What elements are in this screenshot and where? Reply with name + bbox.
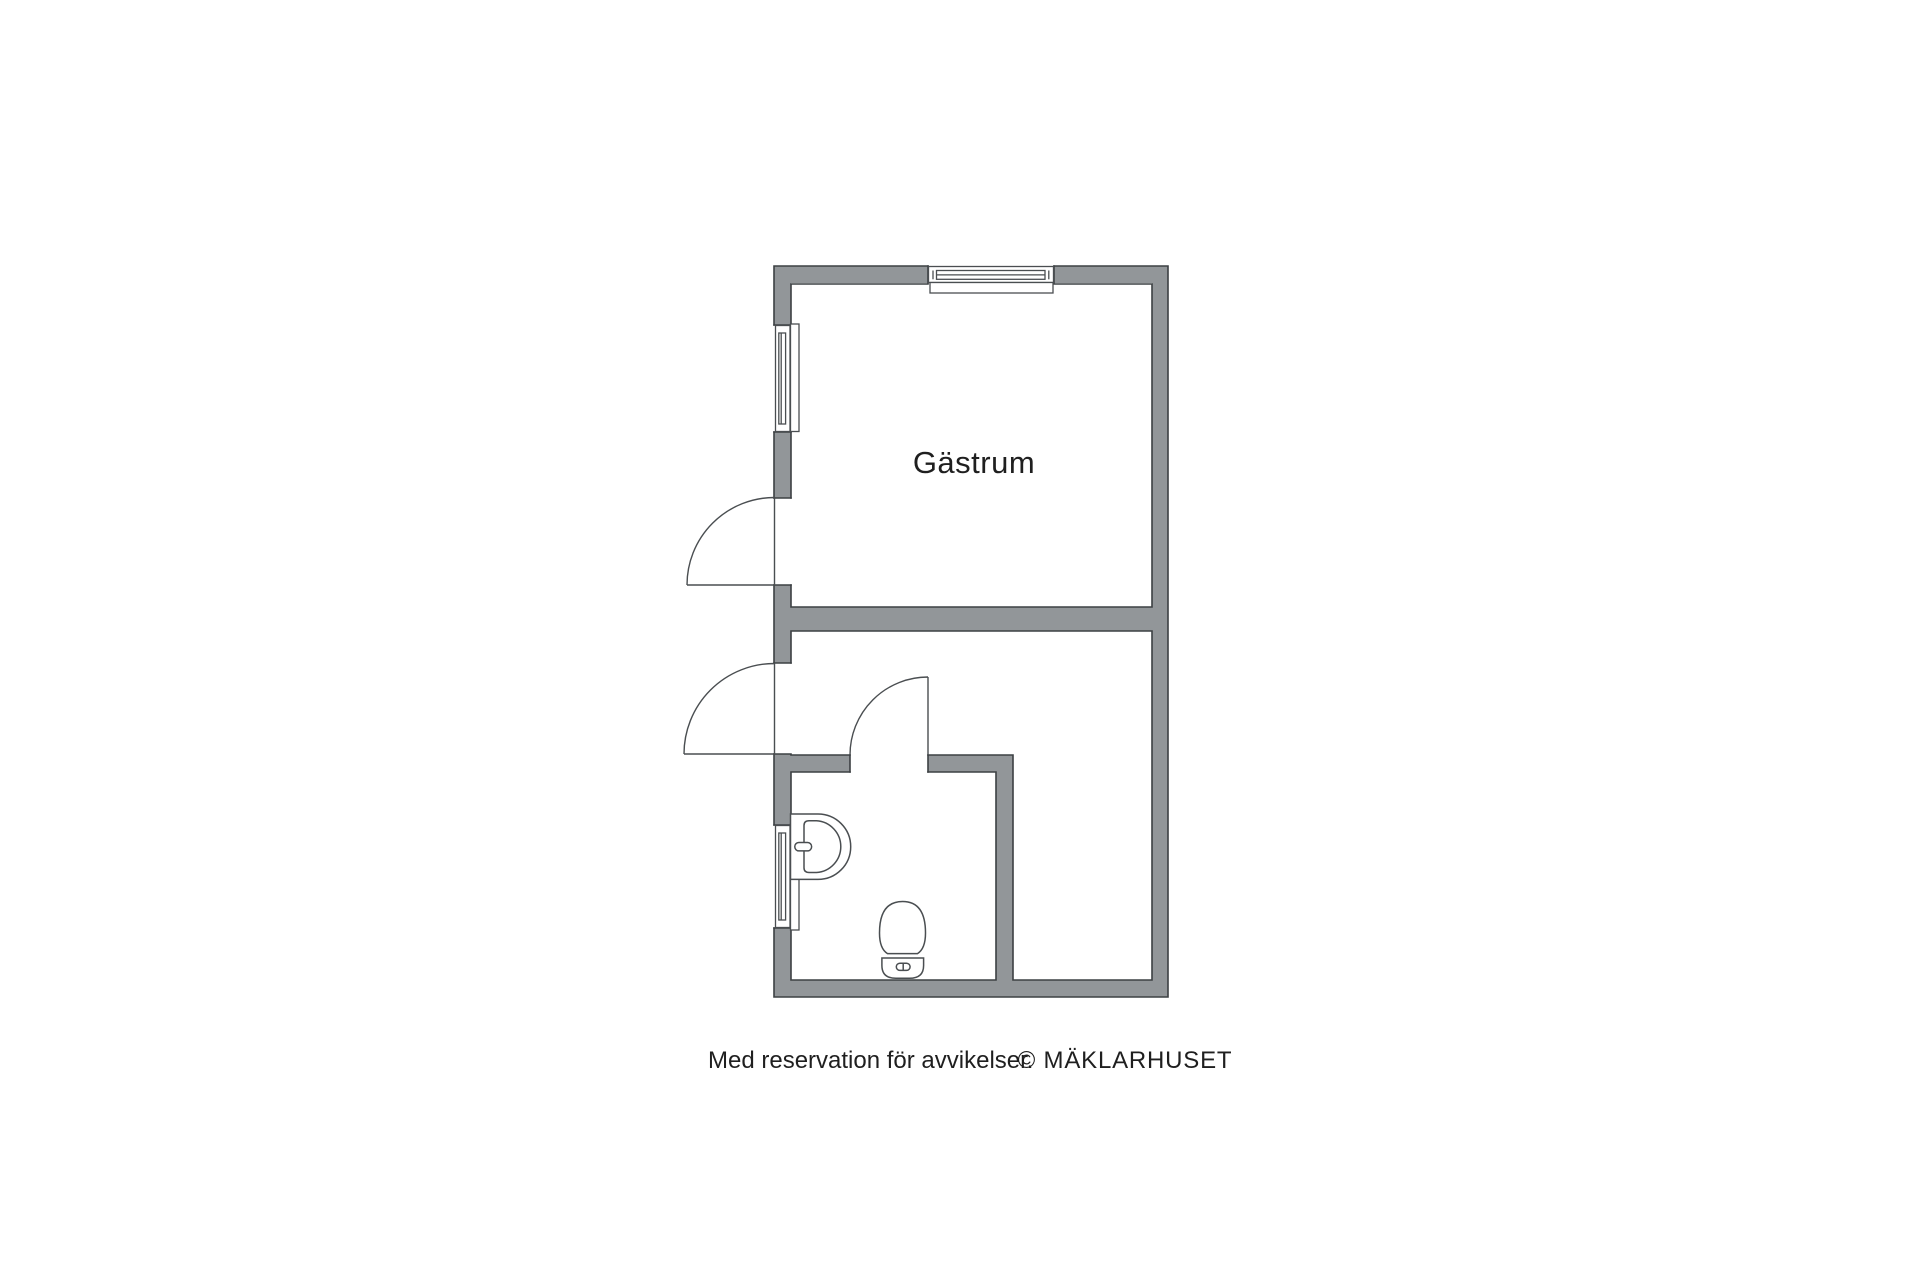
wall-divider — [789, 607, 1152, 631]
wall-bottom — [774, 980, 1168, 997]
toilet-bowl — [880, 902, 926, 954]
wall-left-seg4 — [774, 754, 791, 825]
footer-copyright: © MÄKLARHUSET — [1018, 1047, 1233, 1074]
window-glass — [779, 833, 786, 920]
room-label: Gästrum — [913, 445, 1035, 480]
floorplan-svg: Gästrum Med reservation för avvikelser. … — [0, 0, 1920, 1280]
wall-bath-right — [996, 755, 1013, 982]
top-window-icon — [929, 267, 1054, 294]
wall-bath-top-left — [789, 755, 850, 772]
wall-left-seg1 — [774, 266, 791, 325]
sink-icon — [791, 814, 851, 879]
entry-door-icon — [684, 663, 775, 754]
wall-outline-lower — [791, 631, 1152, 980]
window-glass — [779, 333, 786, 424]
floorplan-stage: Gästrum Med reservation för avvikelser. … — [0, 0, 1920, 1280]
bathroom-door-icon — [850, 677, 928, 755]
wall-left-seg5 — [774, 928, 791, 997]
window-sill — [930, 283, 1053, 294]
footer-disclaimer: Med reservation för avvikelser. — [708, 1047, 1033, 1074]
wall-right — [1152, 266, 1168, 997]
wall-top-left — [774, 266, 928, 283]
wall-outlines — [774, 266, 1168, 997]
left-upper-window-icon — [776, 324, 800, 432]
gastrum-door-icon — [687, 498, 775, 586]
sink-faucet — [795, 843, 812, 851]
wall-top-right — [1054, 266, 1168, 283]
toilet-icon — [880, 902, 926, 979]
wall-left-seg2 — [774, 432, 791, 498]
wall-left-seg3 — [774, 585, 791, 663]
window-sill — [791, 324, 800, 432]
